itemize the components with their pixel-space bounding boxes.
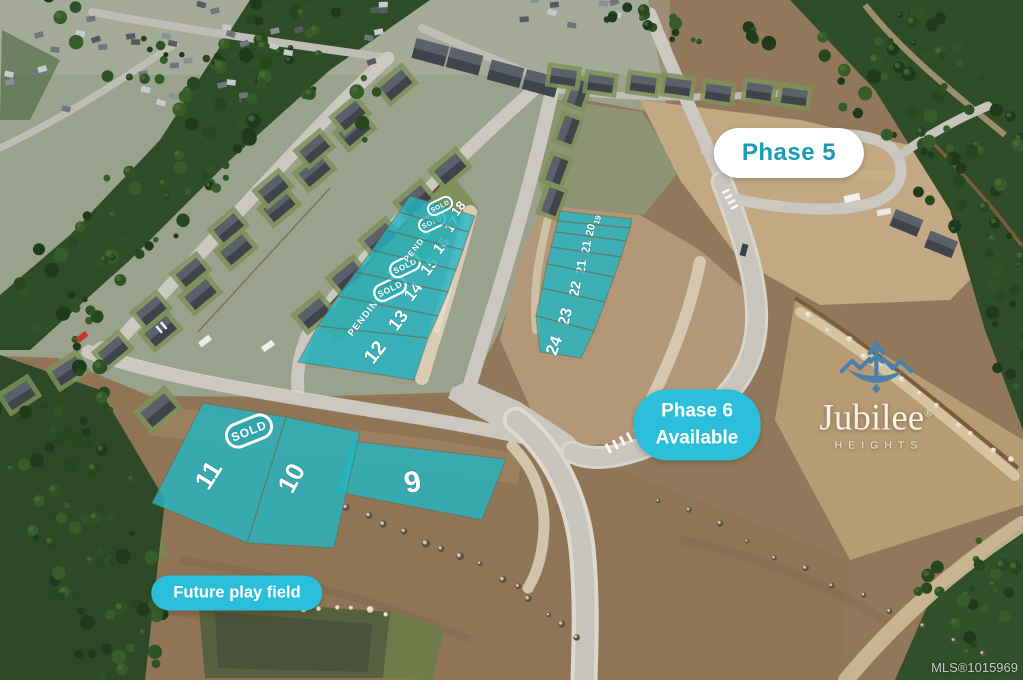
- phase5-pill: Phase 5: [714, 128, 864, 178]
- aerial-lot-map: 91011SOLD1213PENDING14SOLD15SOLD16PENDIN…: [0, 0, 1023, 680]
- future-play-field-pill: Future play field: [151, 576, 322, 611]
- registered-mark: ®: [924, 407, 932, 419]
- logo-wordmark: Jubilee®: [819, 400, 932, 437]
- lot-number-20: 20: [584, 223, 598, 237]
- logo-subtitle: HEIGHTS: [819, 440, 932, 452]
- phase6-pill: Phase 6 Available: [634, 389, 761, 460]
- phase6-line1: Phase 6: [656, 398, 739, 425]
- jubilee-heights-logo: Jubilee® HEIGHTS: [819, 341, 932, 452]
- future-play-field-label: Future play field: [173, 584, 300, 602]
- jubilee-emblem-icon: [837, 341, 915, 395]
- phase6-line2: Available: [656, 425, 739, 452]
- phase5-label: Phase 5: [742, 139, 836, 166]
- mls-watermark: MLS®1015969: [931, 660, 1018, 675]
